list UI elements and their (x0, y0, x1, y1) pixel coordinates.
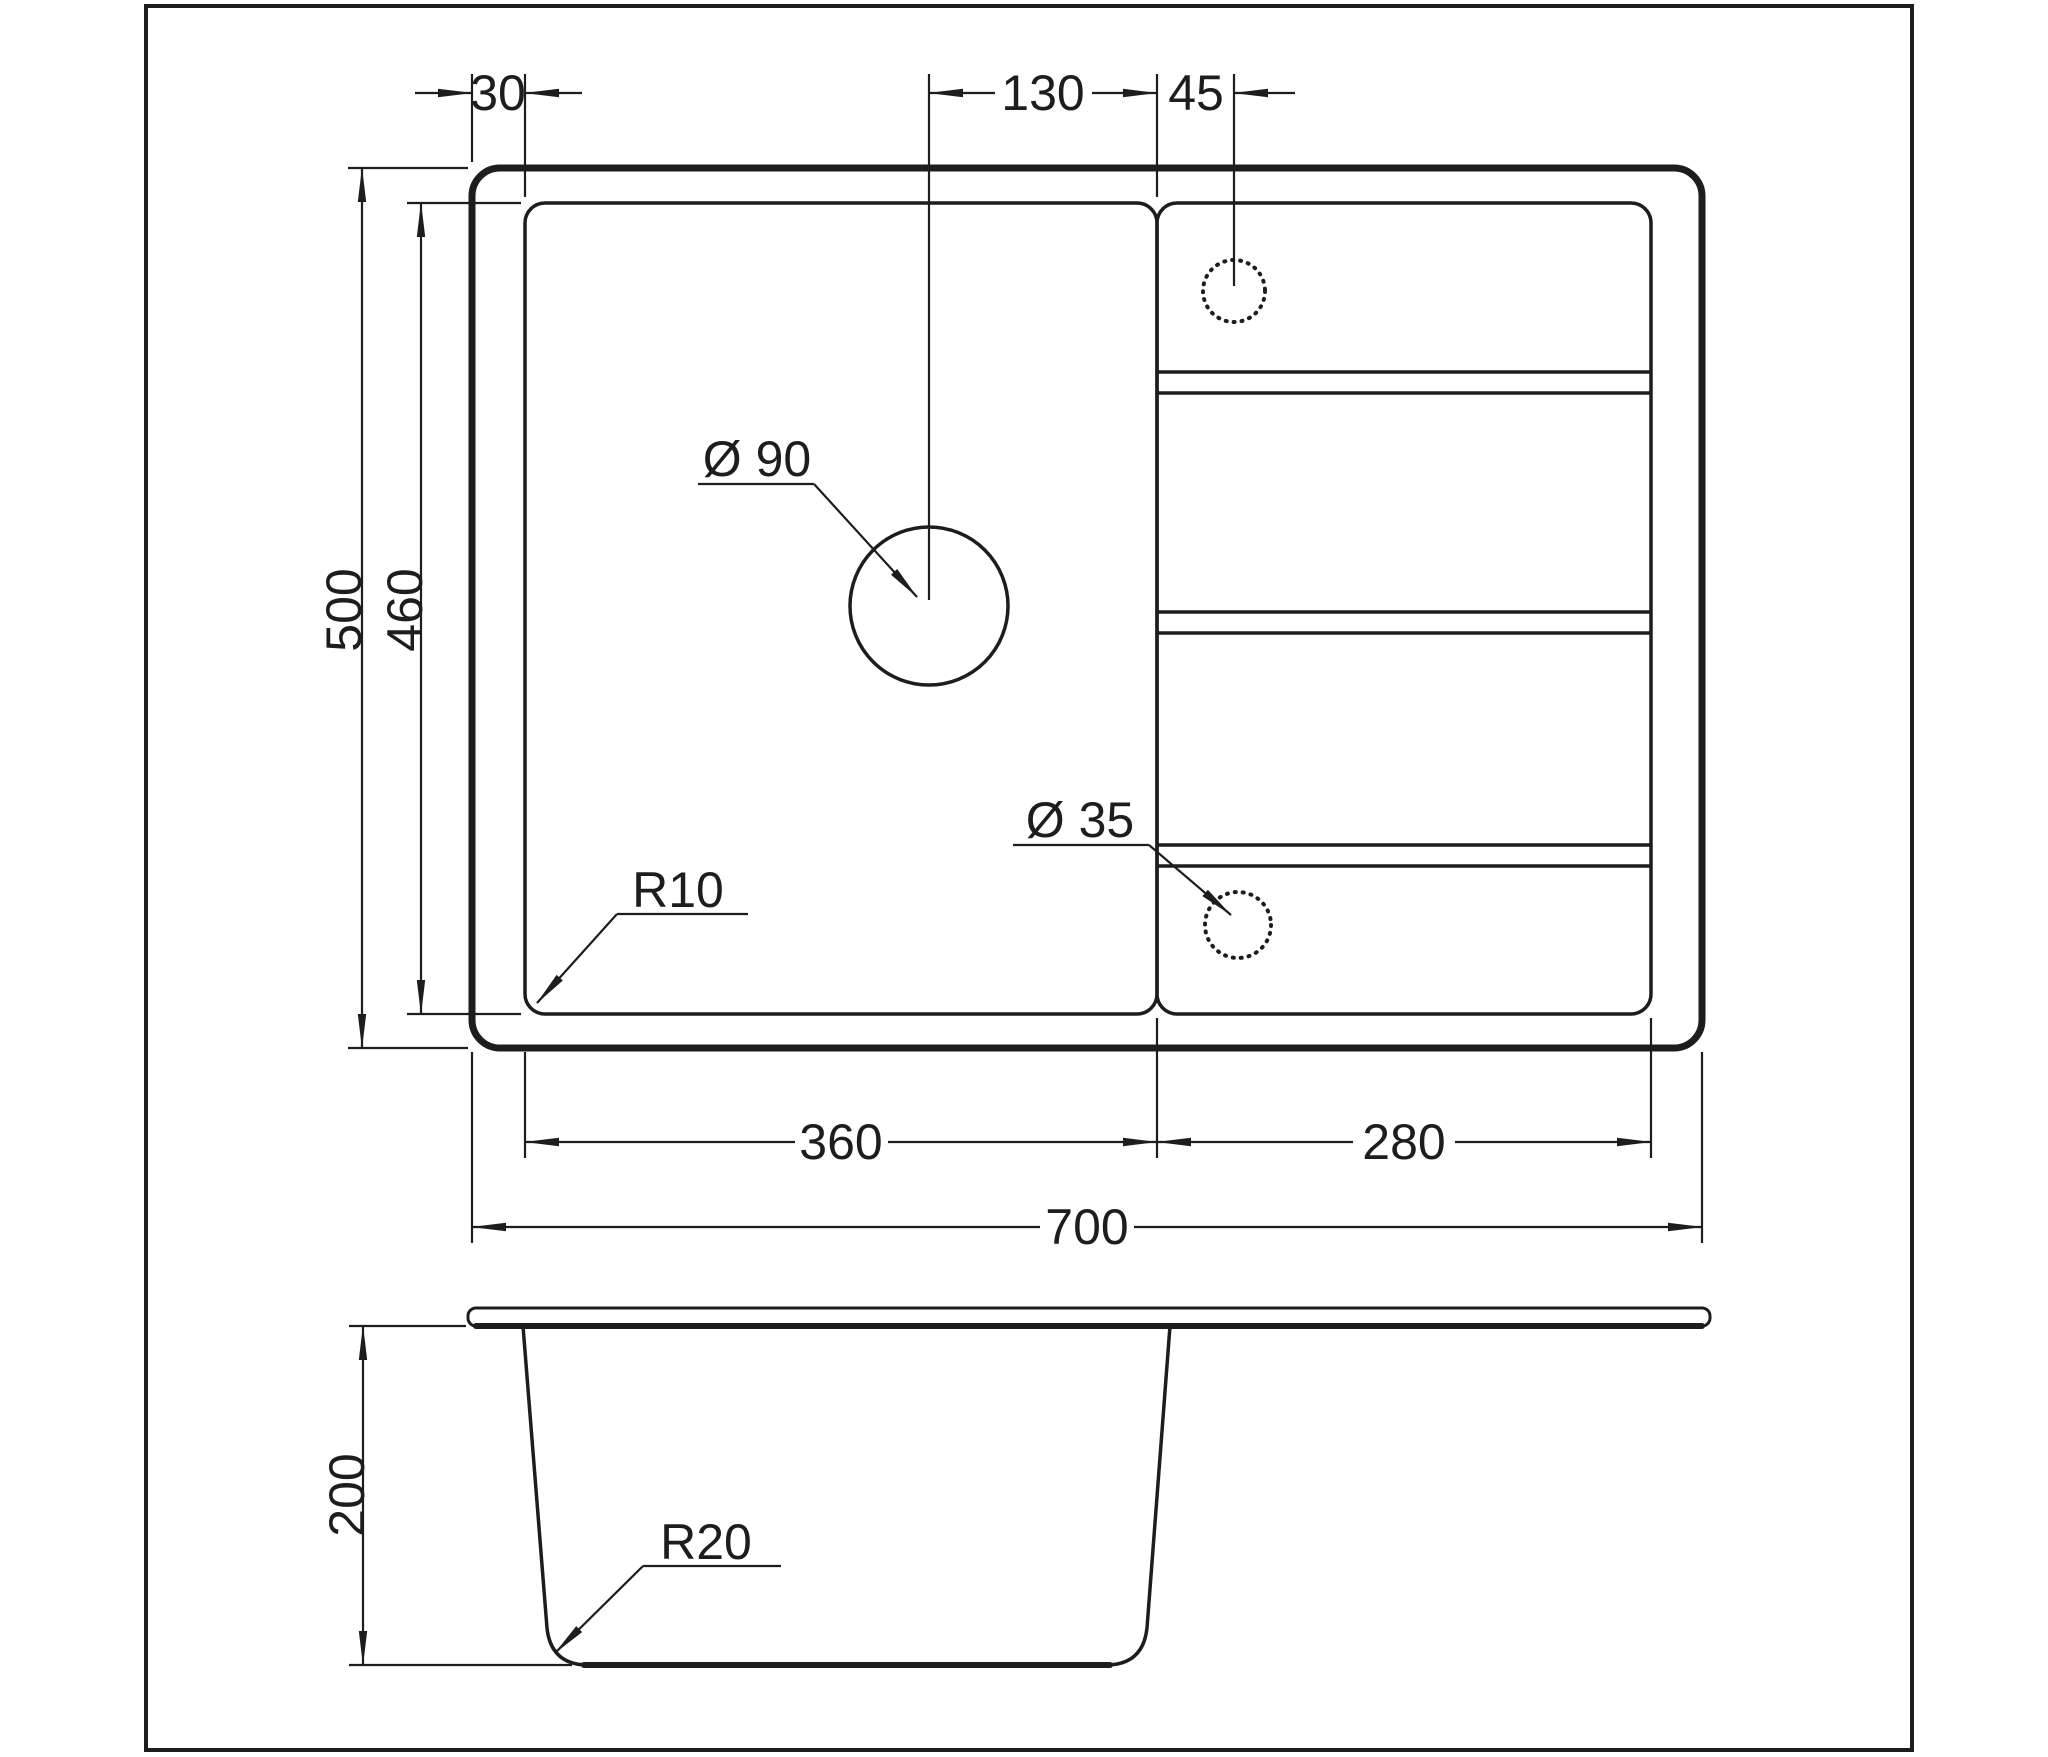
bottom-corner-radius-label: R20 (660, 1514, 752, 1570)
dim-bowl-width-label: 360 (799, 1114, 882, 1170)
dim-drain-to-bowl-edge: 130 (929, 65, 1157, 121)
dim-rim-offset-label: 30 (470, 65, 526, 121)
side-view: 200 R20 (319, 1308, 1710, 1665)
dim-overall-width: 700 (472, 1199, 1702, 1255)
dim-bowl-depth: 460 (377, 203, 521, 1014)
dim-bowl-height: 200 (319, 1326, 572, 1665)
bowl-edge (525, 203, 1157, 1014)
bowl-tub-outline (523, 1326, 1170, 1665)
drainboard-ribs (1157, 372, 1651, 866)
leader-arrow (1149, 845, 1231, 915)
dim-bowl-width: 360 (525, 1114, 1157, 1170)
leader-drain-diameter: Ø 90 (698, 431, 917, 597)
leader-arrow (814, 484, 917, 597)
drain-diameter-label: Ø 90 (703, 431, 811, 487)
sink-technical-drawing: 30 130 45 500 460 (0, 0, 2048, 1757)
border-frame (146, 6, 1912, 1750)
leader-faucet-hole-diameter: Ø 35 (1013, 792, 1231, 915)
faucet-hole-diameter-label: Ø 35 (1026, 792, 1134, 848)
dim-bowl-edge-to-faucet-label: 45 (1168, 65, 1224, 121)
drawing-page: 30 130 45 500 460 (0, 0, 2048, 1757)
dim-overall-depth-label: 500 (316, 568, 372, 651)
bowl-corner-radius-label: R10 (632, 862, 724, 918)
leader-bowl-corner-radius: R10 (537, 862, 748, 1003)
leader-bottom-corner-radius: R20 (555, 1514, 781, 1653)
dim-drainboard-width: 280 (1157, 1114, 1651, 1170)
dim-drain-to-bowl-edge-label: 130 (1001, 65, 1084, 121)
dim-bowl-height-label: 200 (319, 1453, 375, 1536)
top-view: 30 130 45 500 460 (316, 65, 1702, 1255)
leader-arrow (555, 1566, 643, 1653)
dim-rim-offset: 30 (415, 65, 582, 121)
leader-arrow (537, 914, 617, 1003)
dim-bowl-edge-to-faucet: 45 (1168, 65, 1295, 121)
dim-bowl-depth-label: 460 (377, 568, 433, 651)
drainboard-edge (1157, 203, 1651, 1014)
dim-drainboard-width-label: 280 (1362, 1114, 1445, 1170)
top-extension-lines (472, 74, 1234, 600)
dim-overall-width-label: 700 (1045, 1199, 1128, 1255)
